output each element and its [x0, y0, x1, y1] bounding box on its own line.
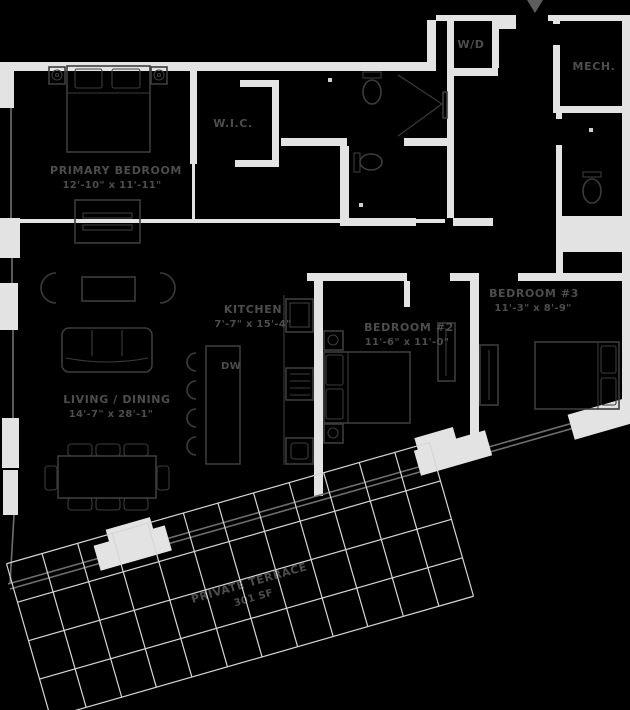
room-bedroom-3: BEDROOM #3 11'-3" x 8'-9": [480, 287, 619, 409]
primary-bathroom: [328, 72, 447, 136]
label-primary-bedroom: PRIMARY BEDROOM: [50, 164, 182, 177]
terrace-grid: [6, 442, 473, 710]
toilet-icon: [354, 153, 382, 172]
label-bedroom-3: BEDROOM #3: [489, 287, 579, 300]
label-walk-in-closet: W.I.C.: [213, 117, 253, 130]
label-bedroom-2: BEDROOM #2: [364, 321, 454, 334]
entry-arrow-icon: [527, 0, 543, 13]
dim-kitchen: 7'-7" x 15'-4": [214, 319, 291, 330]
kitchen-sink-icon: [286, 438, 313, 464]
room-kitchen: KITCHEN 7'-7" x 15'-4" DW: [187, 295, 313, 465]
label-mechanical: MECH.: [573, 60, 616, 73]
sink-icon: [589, 128, 593, 132]
dining-table-icon: [45, 444, 169, 510]
room-living-dining: LIVING / DINING 14'-7" x 28'-1": [41, 273, 175, 510]
dim-bedroom-2: 11'-6" x 11'-0": [365, 337, 450, 348]
label-kitchen: KITCHEN: [224, 303, 282, 316]
toilet-icon: [583, 172, 601, 203]
wardrobe-icon: [480, 345, 498, 405]
coffee-table-icon: [82, 277, 135, 301]
bathroom-3: [583, 128, 601, 203]
hall-bathroom: [354, 153, 382, 207]
bed-icon: [49, 66, 167, 152]
range-icon: [286, 368, 313, 400]
label-living-dining: LIVING / DINING: [63, 393, 170, 406]
dim-bedroom-3: 11'-3" x 8'-9": [494, 303, 571, 314]
dim-living-dining: 14'-7" x 28'-1": [69, 409, 154, 420]
bar-stools-icon: [187, 353, 196, 455]
bed-icon: [535, 342, 619, 409]
sofa-icon: [62, 328, 152, 372]
label-dishwasher: DW: [221, 361, 241, 372]
floor-plan: PRIMARY BEDROOM 12'-10" x 11'-11" W.I.C.: [0, 0, 630, 710]
floor-plan-canvas: PRIMARY BEDROOM 12'-10" x 11'-11" W.I.C.: [0, 0, 630, 710]
dim-primary-bedroom: 12'-10" x 11'-11": [62, 180, 161, 191]
room-bedroom-2: BEDROOM #2 11'-6" x 11'-0": [324, 321, 455, 443]
shower-icon: [398, 75, 447, 136]
sink-icon: [328, 78, 332, 82]
room-private-terrace: PRIVATE TERRACE 301 SF: [6, 442, 473, 710]
label-washer-dryer: W/D: [457, 38, 484, 51]
sink-icon: [359, 203, 363, 207]
toilet-icon: [363, 72, 381, 104]
room-primary-bedroom: PRIMARY BEDROOM 12'-10" x 11'-11": [49, 66, 182, 243]
walls: [0, 15, 630, 515]
